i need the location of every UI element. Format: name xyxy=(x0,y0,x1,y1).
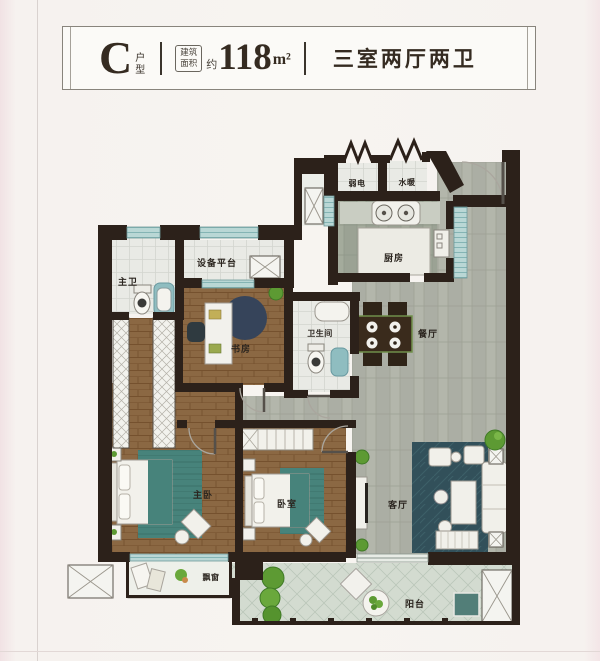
desk-item xyxy=(209,344,221,353)
room-label-kitchen: 厨房 xyxy=(384,252,404,263)
stool xyxy=(175,530,189,544)
pillow xyxy=(119,465,130,490)
armchair xyxy=(429,448,451,466)
floorplan-drawing: 弱电 水暖 厨房 设备平台 主卫 书房 卫生间 餐厅 主卧 卧室 客厅 飘窗 阳… xyxy=(0,0,600,661)
sink-basin xyxy=(157,288,171,311)
room-label-bathroom: 卫生间 xyxy=(307,328,333,338)
coffee-table xyxy=(451,481,476,524)
nightstand xyxy=(243,459,255,471)
planter-plant xyxy=(371,604,377,610)
bay-window-glass xyxy=(130,554,228,561)
pillow xyxy=(254,502,264,523)
pillow xyxy=(119,494,130,519)
tv-icon xyxy=(365,483,368,523)
nightstand xyxy=(243,528,255,540)
closet-strip xyxy=(153,318,175,448)
passage-floor xyxy=(243,396,352,424)
armchair xyxy=(464,446,484,464)
room-label-living: 客厅 xyxy=(387,499,408,510)
floor-lamp-icon xyxy=(434,490,448,504)
closet-strip xyxy=(113,318,129,448)
floorplan-page: C 户型 建筑面积 约 118 m² 三室两厅两卫 xyxy=(0,0,600,661)
plate-icon xyxy=(393,325,397,329)
plate-icon xyxy=(370,341,374,345)
bench xyxy=(436,531,478,549)
plate-icon xyxy=(393,341,397,345)
bed-headboard xyxy=(245,476,252,526)
room-label-balcony: 阳台 xyxy=(405,598,425,609)
window xyxy=(127,227,160,238)
room-label-weak-power: 弱电 xyxy=(349,178,366,188)
side-table xyxy=(451,452,461,462)
desk-chair xyxy=(187,322,205,342)
bathtub-icon xyxy=(315,302,349,321)
plant-icon xyxy=(494,432,502,440)
toilet-icon xyxy=(138,299,147,308)
desk-item xyxy=(209,310,221,319)
burner-icon xyxy=(382,211,386,215)
room-label-master-bedroom: 主卧 xyxy=(193,489,213,500)
dining-table xyxy=(357,316,412,352)
plant-icon xyxy=(262,567,284,589)
plant-icon xyxy=(269,286,283,300)
window xyxy=(324,196,334,226)
toilet-tank xyxy=(308,344,324,351)
room-label-dining: 餐厅 xyxy=(417,328,438,339)
stool xyxy=(300,534,312,546)
room-label-bay-window: 飘窗 xyxy=(203,572,220,582)
wardrobe xyxy=(241,429,313,450)
plant-icon xyxy=(260,588,280,608)
pillow xyxy=(254,478,264,499)
room-label-bedroom: 卧室 xyxy=(277,498,297,509)
balcony-table xyxy=(454,593,479,616)
sink-icon xyxy=(331,348,348,376)
room-label-master-bath: 主卫 xyxy=(118,276,138,287)
sofa xyxy=(482,462,507,533)
plant-icon xyxy=(485,430,505,450)
room-label-study: 书房 xyxy=(231,343,251,354)
bed-blanket xyxy=(148,460,172,524)
plant-icon xyxy=(355,450,369,464)
toilet-icon xyxy=(312,358,321,367)
master-bath-fixtures xyxy=(134,283,174,315)
window xyxy=(202,280,254,288)
plate-icon xyxy=(370,325,374,329)
cabinet-teal xyxy=(454,207,467,278)
plant-icon xyxy=(356,539,368,551)
window xyxy=(200,227,258,238)
room-label-plumbing: 水暖 xyxy=(398,177,416,187)
room-label-equipment: 设备平台 xyxy=(197,257,237,268)
burner-icon xyxy=(404,211,408,215)
flower-icon xyxy=(182,577,188,583)
kitchen-island xyxy=(358,228,430,275)
